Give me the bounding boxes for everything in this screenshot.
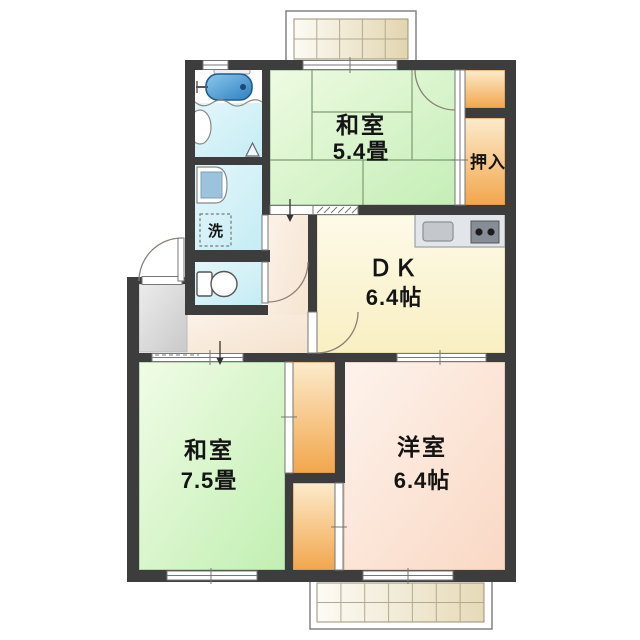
floorplan-canvas: 和室 5.4畳 押入 ＤＫ 6.4帖 和室 7.5畳 洋室 6.4帖 洗 — [0, 0, 640, 640]
entrance-door-arc — [139, 238, 182, 281]
stove-burner-left — [475, 228, 482, 235]
toilet-tank — [197, 272, 212, 296]
kitchen-sink — [423, 222, 453, 241]
room-youshitsu — [344, 362, 505, 570]
label-dk-size: 6.4帖 — [366, 285, 423, 310]
laundry-room-door — [262, 215, 268, 250]
closet-oshiire-top — [465, 70, 505, 108]
label-washitsu-lower-size: 7.5畳 — [181, 468, 238, 493]
fusuma-washitsu-dk — [313, 206, 358, 215]
closet-center-upper — [293, 362, 335, 473]
closet-center-lower — [293, 483, 335, 570]
balcony-bottom — [310, 576, 492, 629]
floorplan-drawing: 和室 5.4畳 押入 ＤＫ 6.4帖 和室 7.5畳 洋室 6.4帖 洗 — [0, 0, 640, 640]
genkan-entry-floor — [139, 284, 187, 352]
window-bathroom-top — [203, 61, 228, 70]
toilet-bowl — [211, 272, 237, 297]
label-oshiire: 押入 — [470, 152, 506, 172]
room-washitsu-lower — [139, 362, 285, 570]
label-youshitsu-name: 洋室 — [397, 434, 447, 460]
vanity-bowl — [201, 172, 222, 198]
stove-burner-right — [487, 228, 494, 235]
kitchen-stove — [471, 221, 499, 243]
balcony-top — [286, 11, 416, 63]
entrance-opening — [142, 277, 182, 285]
label-washitsu-upper-name: 和室 — [336, 112, 386, 138]
label-washitsu-lower-name: 和室 — [184, 437, 234, 463]
entrance-door-leaf — [178, 238, 184, 281]
bathtub-drain — [240, 84, 246, 90]
label-dk-name: ＤＫ — [369, 255, 419, 281]
label-washitsu-upper-size: 5.4畳 — [333, 139, 390, 164]
label-youshitsu-size: 6.4帖 — [394, 468, 451, 493]
hallway-lower — [187, 315, 308, 353]
passage-hall-washitsu — [270, 206, 313, 215]
label-laundry: 洗 — [208, 222, 223, 240]
toilet-door — [262, 262, 268, 303]
dk-door-opening — [308, 312, 317, 353]
